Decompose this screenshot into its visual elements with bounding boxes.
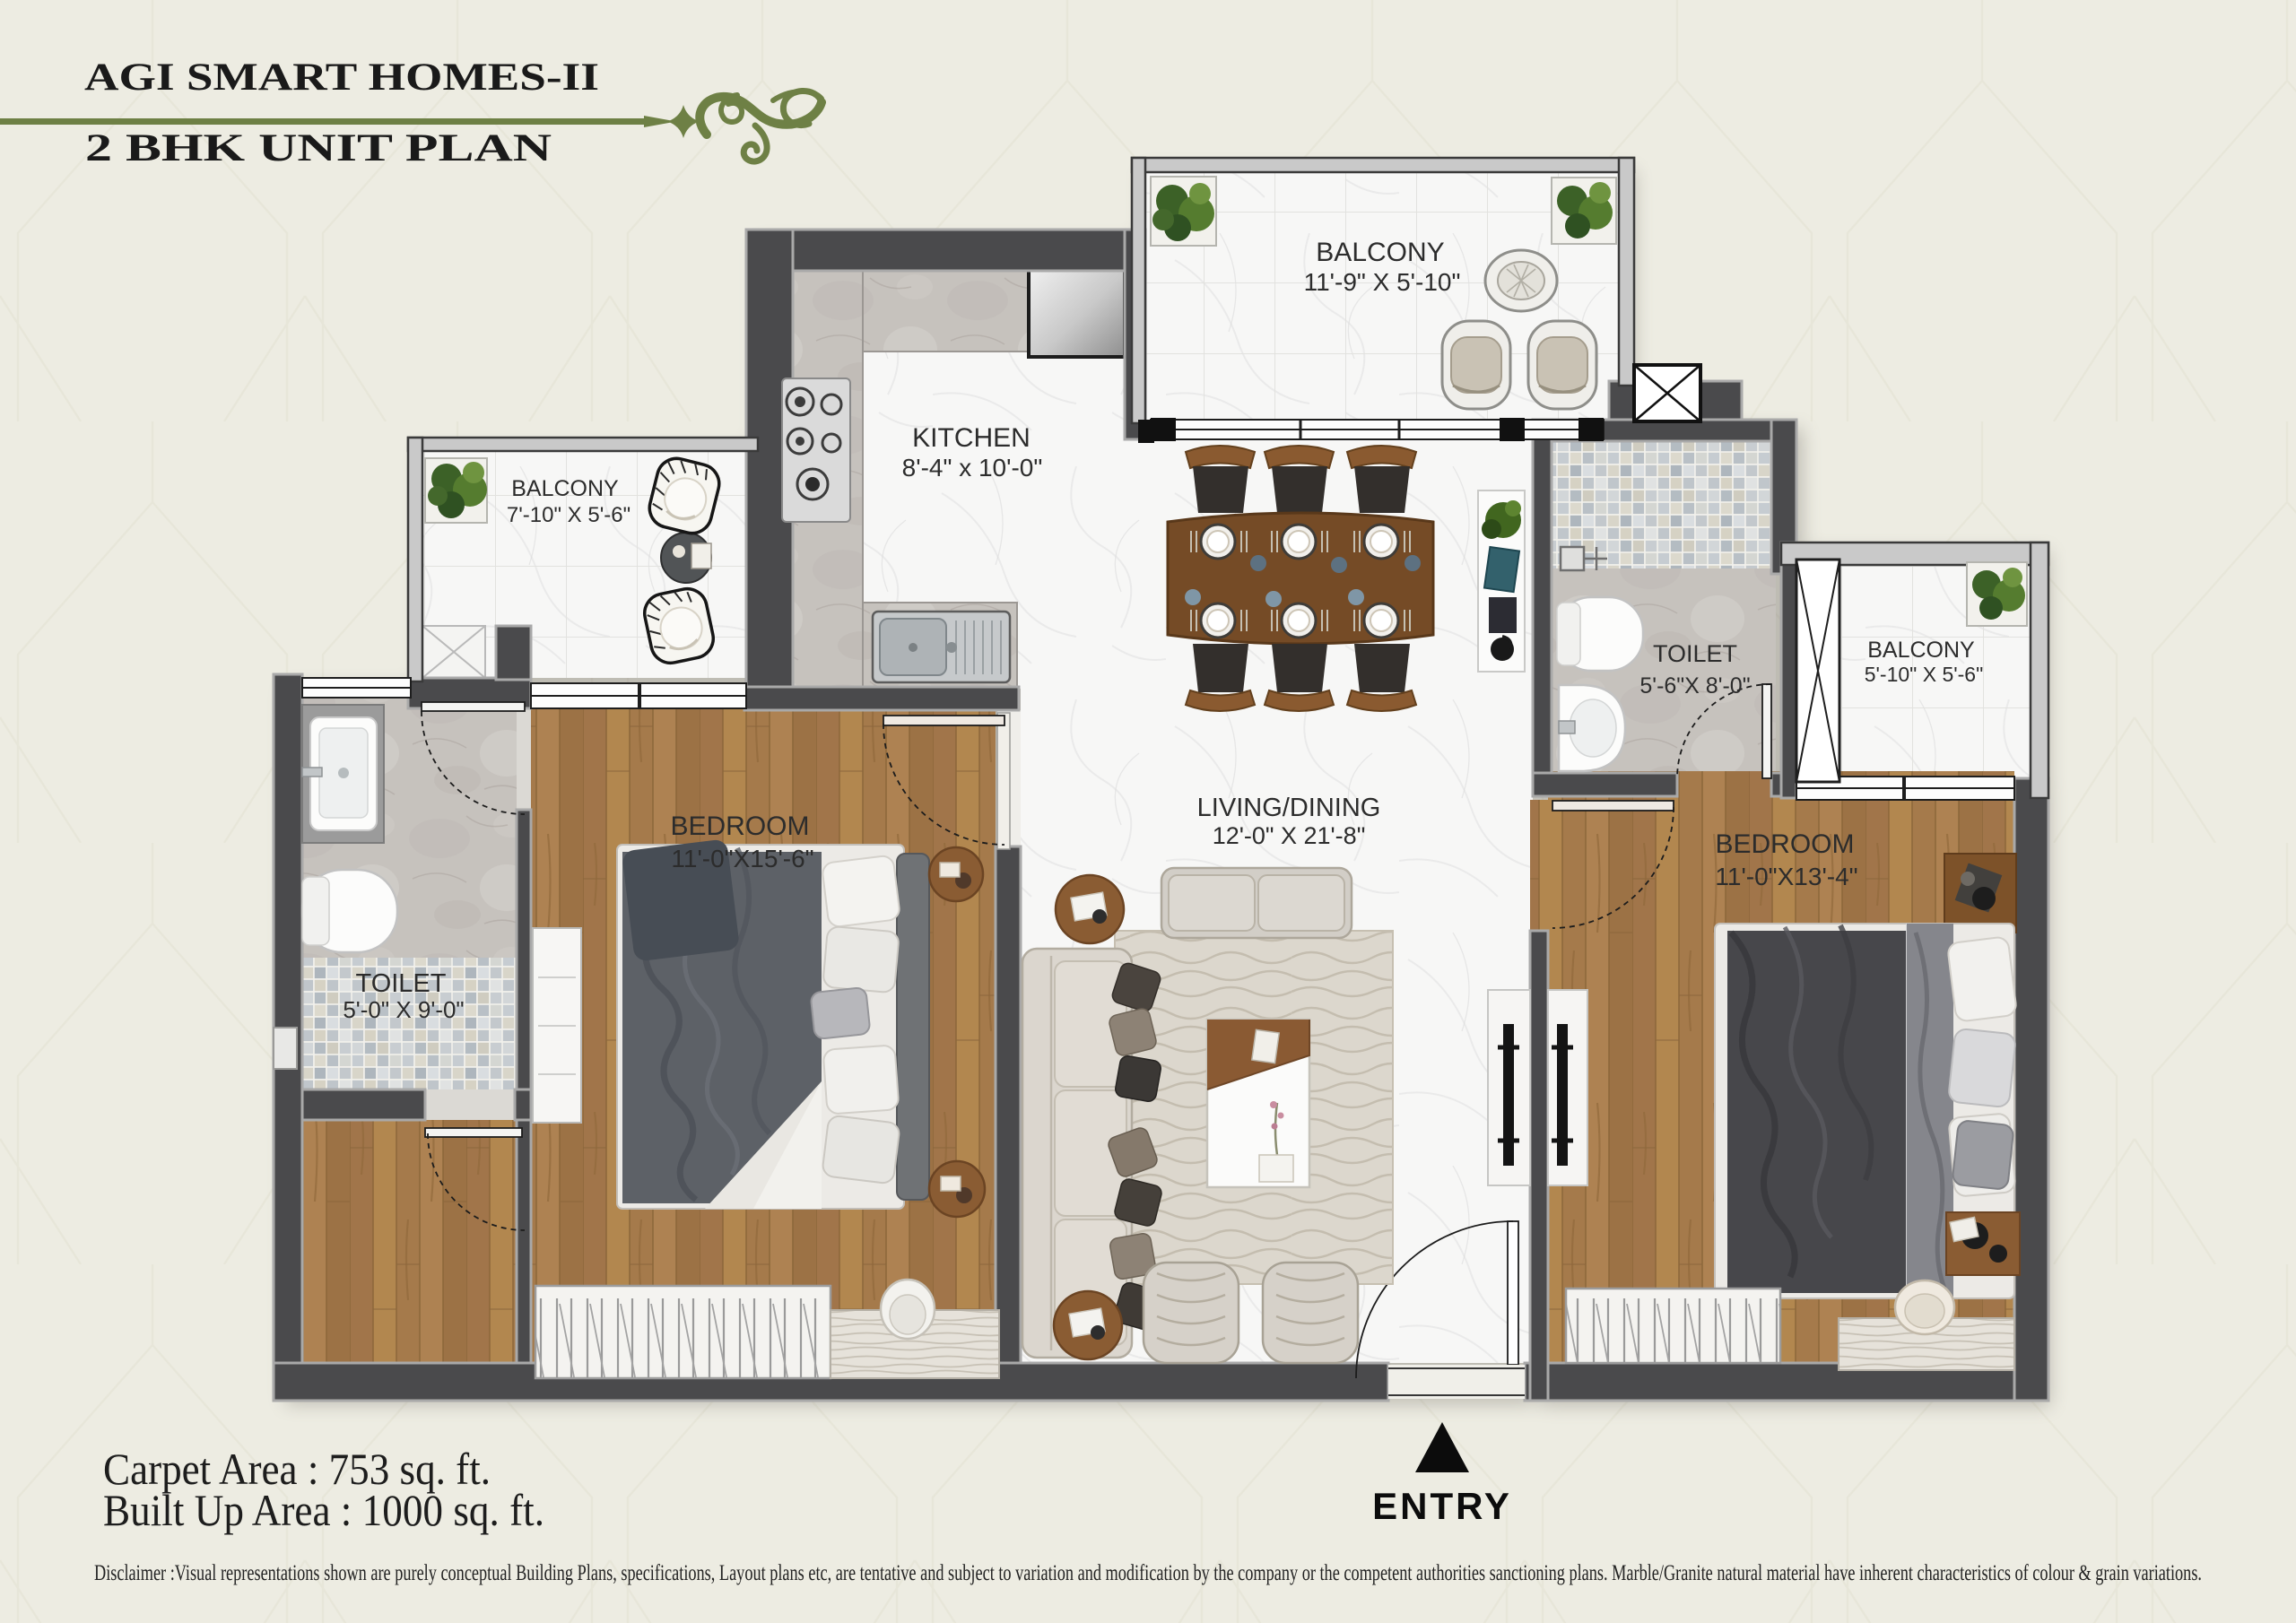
svg-text:5'-6"X 8'-0": 5'-6"X 8'-0": [1639, 673, 1750, 699]
svg-text:TOILET: TOILET: [356, 969, 447, 998]
svg-text:BEDROOM: BEDROOM: [1715, 829, 1854, 859]
svg-text:11'-9" X 5'-10": 11'-9" X 5'-10": [1304, 268, 1461, 296]
svg-text:Built Up Area : 1000 sq. ft.: Built Up Area : 1000 sq. ft.: [103, 1485, 544, 1535]
svg-text:2 BHK UNIT PLAN: 2 BHK UNIT PLAN: [85, 127, 552, 169]
svg-text:BEDROOM: BEDROOM: [670, 811, 809, 841]
svg-text:11'-0"X15'-6": 11'-0"X15'-6": [671, 845, 813, 872]
svg-text:5'-0" X 9'-0": 5'-0" X 9'-0": [343, 996, 464, 1023]
svg-text:Disclaimer :Visual representat: Disclaimer :Visual representations shown…: [94, 1561, 2202, 1585]
svg-text:BALCONY: BALCONY: [1867, 638, 1975, 663]
svg-text:AGI SMART HOMES-II: AGI SMART HOMES-II: [84, 56, 599, 99]
svg-text:LIVING/DINING: LIVING/DINING: [1197, 794, 1381, 822]
svg-text:TOILET: TOILET: [1653, 640, 1737, 667]
svg-text:12'-0" X 21'-8": 12'-0" X 21'-8": [1213, 822, 1366, 849]
svg-text:5'-10" X 5'-6": 5'-10" X 5'-6": [1865, 663, 1984, 686]
svg-text:BALCONY: BALCONY: [1316, 238, 1444, 267]
svg-text:KITCHEN: KITCHEN: [912, 423, 1031, 453]
svg-text:BALCONY: BALCONY: [511, 476, 619, 501]
svg-text:8'-4" x 10'-0": 8'-4" x 10'-0": [902, 454, 1043, 482]
svg-text:11'-0"X13'-4": 11'-0"X13'-4": [1715, 863, 1857, 890]
svg-text:ENTRY: ENTRY: [1372, 1485, 1512, 1527]
svg-text:7'-10" X 5'-6": 7'-10" X 5'-6": [507, 503, 631, 527]
